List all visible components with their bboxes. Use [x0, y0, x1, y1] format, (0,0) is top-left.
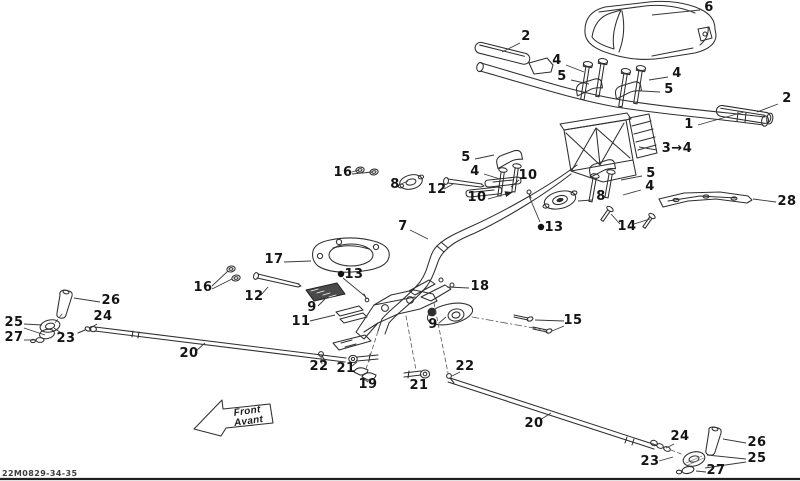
- callout-label-26: 26: [101, 293, 120, 308]
- callout-label-4: 4: [470, 164, 480, 179]
- callout-label-13: 13: [344, 267, 363, 282]
- callout-leader-25: [707, 455, 746, 459]
- callout-layer: 624545213→454541010128167138142817131612…: [4, 0, 796, 478]
- bolt-12-lower: [253, 272, 301, 287]
- callout-label-25: 25: [747, 451, 766, 466]
- callout-label-10: 10: [467, 190, 486, 205]
- callout-label-25: 25: [4, 315, 23, 330]
- callout-label-2: 2: [521, 29, 531, 44]
- callout-label-17: 17: [264, 252, 283, 267]
- callout-label-23: 23: [56, 331, 75, 346]
- rubber-pad-9-left: [306, 283, 345, 301]
- callout-label-11: 11: [291, 314, 310, 329]
- callout-label-4: 4: [672, 66, 682, 81]
- callout-leader-26: [74, 298, 100, 302]
- callout-label-16: 16: [333, 165, 352, 180]
- callout-leader-17: [284, 261, 311, 262]
- flange-nuts-upper: [355, 166, 378, 175]
- support-bracket-28: [659, 192, 752, 207]
- callout-leader-8: [401, 181, 408, 184]
- callout-label-14: 14: [617, 219, 636, 234]
- callout-label-24: 24: [670, 429, 689, 444]
- callout-label-5: 5: [664, 82, 674, 97]
- callout-label-21: 21: [336, 361, 355, 376]
- callout-dot-13: [338, 271, 344, 277]
- callout-label-12: 12: [244, 289, 263, 304]
- callout-label-18: 18: [470, 279, 489, 294]
- callout-label-23: 23: [640, 454, 659, 469]
- callout-dot-13: [538, 224, 544, 230]
- callout-label-19: 19: [358, 377, 377, 392]
- drawing-code: 22M0829-34-35: [2, 469, 77, 478]
- callout-label-24: 24: [93, 309, 112, 324]
- callout-leader-4: [566, 65, 584, 72]
- callout-label-12: 12: [427, 182, 446, 197]
- callout-leader-8: [578, 200, 592, 201]
- callout-leader-2: [502, 43, 520, 52]
- callout-leader-16: [212, 271, 228, 286]
- assembly-axis-line: [406, 316, 416, 370]
- callout-label-9: 9: [307, 300, 317, 315]
- callout-leader-18: [447, 287, 469, 288]
- handlebar-grip-left: [474, 41, 531, 65]
- callout-label-10: 10: [518, 168, 537, 183]
- callout-leader-27: [696, 471, 706, 472]
- callout-leader-26: [723, 439, 746, 443]
- callout-label-3→4: 3→4: [662, 141, 692, 156]
- callout-label-16: 16: [193, 280, 212, 295]
- callout-leader-24: [666, 444, 674, 448]
- callout-leader-4: [623, 190, 641, 195]
- callout-label-8: 8: [390, 177, 400, 192]
- bearing-flange-upper: [398, 172, 424, 191]
- callout-label-6: 6: [704, 0, 714, 15]
- callout-label-5: 5: [461, 150, 471, 165]
- callout-leader-16: [212, 279, 232, 289]
- callout-label-26: 26: [747, 435, 766, 450]
- handlebar-clamp-bolts: [578, 58, 646, 107]
- grip-lever-bracket: [529, 58, 553, 74]
- callout-label-2: 2: [782, 91, 792, 106]
- callout-label-4: 4: [645, 179, 655, 194]
- callout-label-7: 7: [398, 219, 408, 234]
- callout-label-28: 28: [777, 194, 796, 209]
- callout-label-9: 9: [428, 317, 438, 332]
- callout-label-15: 15: [563, 313, 582, 328]
- callout-leader-5: [475, 155, 494, 159]
- riser-adapter-hatch: [629, 114, 657, 158]
- bolts-15: [514, 315, 553, 334]
- callout-label-4: 4: [552, 53, 562, 68]
- callout-label-13: 13: [544, 220, 563, 235]
- pitman-arm-assembly: [333, 290, 437, 350]
- callout-label-22: 22: [309, 359, 328, 374]
- callout-label-1: 1: [684, 117, 694, 132]
- callout-leader-4: [649, 77, 668, 80]
- callout-leader-23: [659, 457, 673, 461]
- callout-leader-15: [552, 326, 564, 331]
- plates-11: [336, 306, 367, 323]
- callout-leader-4: [484, 174, 500, 179]
- callout-leader-2: [757, 104, 778, 112]
- riser-block: [560, 113, 636, 182]
- assembly-axis-line: [434, 303, 448, 373]
- column-clamp-upper: [495, 149, 523, 168]
- tie-rod-left: [89, 326, 346, 362]
- callout-label-20: 20: [524, 416, 543, 431]
- flange-nuts-lower: [226, 265, 240, 281]
- assembly-axis-line: [366, 325, 380, 369]
- callout-leader-25: [24, 324, 42, 325]
- callout-leader-11: [310, 315, 335, 321]
- callout-label-27: 27: [4, 330, 23, 345]
- callout-leader-9: [439, 317, 446, 323]
- callout-label-5: 5: [557, 69, 567, 84]
- parts-diagram-page: Front Avant 22M0829-34-35 624545213→4545…: [0, 0, 800, 481]
- callout-leader-5: [642, 91, 660, 92]
- callout-label-20: 20: [179, 346, 198, 361]
- callout-label-8: 8: [596, 189, 606, 204]
- callout-leader-28: [753, 199, 776, 202]
- callout-leader-7: [410, 230, 428, 239]
- rod-end-21-right: [404, 370, 430, 378]
- callout-leader-15: [535, 320, 564, 321]
- callout-label-22: 22: [455, 359, 474, 374]
- exploded-parts-diagram: Front Avant 22M0829-34-35 624545213→4545…: [0, 0, 800, 481]
- bushing-assembly-9-right: [425, 299, 545, 330]
- callout-label-21: 21: [409, 378, 428, 393]
- tie-rod-right: [448, 378, 656, 449]
- callout-label-27: 27: [706, 463, 725, 478]
